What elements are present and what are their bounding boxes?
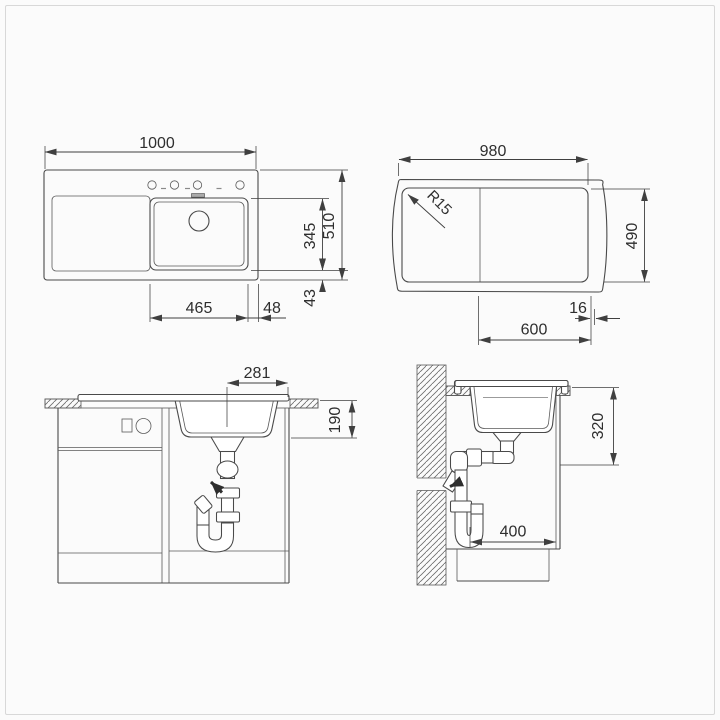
dim-cutout-depth: 490 [624,223,641,250]
front-elevation-view: 281 190 [45,365,357,583]
drain-flange [211,437,244,452]
bowl-section-outer [470,387,557,433]
dim-bowl-length: 345 [302,223,319,250]
plan-view-cutout: R15 980 490 16 600 [392,143,650,345]
union-nut [467,449,482,466]
bowl-outline-inner [154,202,244,266]
dishwasher-control-square [122,419,132,432]
dim-outlet-height: 320 [590,413,607,440]
bowl-outline-outer [150,198,248,270]
wall-section [417,365,446,585]
dim-overall-depth: 510 [321,213,338,240]
tap-hole [170,181,178,189]
countertop-hatch-right [290,399,318,408]
plan-view-sink: 1000 510 345 43 465 48 [44,135,348,322]
countertop-hatch-left [45,399,81,408]
cutout-outer-shape [392,180,606,293]
tap-hole [148,181,156,189]
sink-rim-profile [455,381,568,387]
wall-pipe-opening [416,478,447,491]
u-bend-trap [197,523,234,552]
technical-drawing-page: 1000 510 345 43 465 48 [0,0,720,720]
sink-rim-profile [78,395,289,402]
dim-bowl-zone-width: 600 [521,322,548,339]
overflow-slot [192,194,205,198]
siphon-pipe [222,498,234,512]
dishwasher-control-knob [136,419,151,434]
side-section-view: 320 400 [416,365,619,585]
siphon-nut [217,512,240,522]
ball-joint [217,461,238,478]
bowl-section-outer [175,400,278,437]
trap-riser-pipe [471,504,483,514]
siphon-nut [451,501,472,512]
dim-bowl-width: 465 [186,300,213,317]
drainboard-outline [52,196,150,271]
tap-hole [193,181,201,189]
dim-bowl-side-gap: 48 [263,300,281,317]
elbow-fitting [451,452,468,473]
tap-hole [236,181,244,189]
dim-edge-gap: 16 [569,300,587,317]
dim-corner-radius: R15 [423,187,454,218]
dim-clearance-width: 400 [500,524,527,541]
dim-bowl-depth: 190 [327,407,344,434]
drain-hole [189,211,209,231]
dim-drain-center-to-edge: 281 [244,365,271,382]
sink-outline [44,170,258,280]
dim-bowl-rear-gap: 43 [302,289,319,307]
drain-flange [493,433,521,442]
sink-dimension-drawing: 1000 510 345 43 465 48 [0,0,720,720]
dim-overall-width: 1000 [139,135,175,152]
dim-cutout-width: 980 [480,143,507,160]
